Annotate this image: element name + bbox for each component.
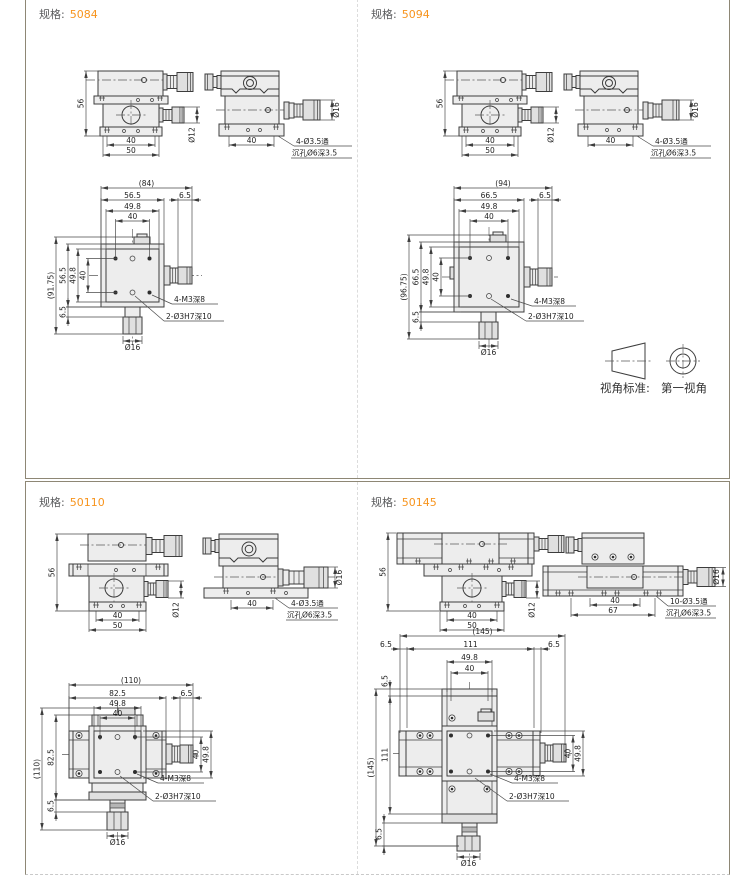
screw <box>419 734 422 737</box>
lower-block <box>89 576 144 602</box>
clamp-band <box>110 803 125 808</box>
dim-label: 66.5 <box>481 191 498 200</box>
mic-bracket <box>534 537 539 551</box>
dim-arrow <box>55 534 58 541</box>
dim-arrow <box>40 823 43 830</box>
shaft-knob <box>457 836 480 851</box>
mic-bracket <box>278 569 283 586</box>
mic-bracket <box>215 540 219 553</box>
bolt-hole <box>449 734 453 738</box>
dim-label: 50 <box>126 146 136 155</box>
dim-arrow <box>382 816 385 823</box>
dim-label: 6.5 <box>47 800 56 812</box>
dim-arrow <box>192 198 199 201</box>
dim-arrow <box>388 807 391 814</box>
dim-arrow <box>721 580 724 587</box>
dim-arrow <box>451 671 458 674</box>
dim-arrow <box>69 696 76 699</box>
mic-sleeve <box>163 110 172 121</box>
dim-label: 56 <box>77 99 86 109</box>
dim-arrow <box>393 647 400 650</box>
dim-label: Ø16 <box>110 838 126 847</box>
dim-arrow <box>209 731 212 738</box>
line <box>275 598 289 608</box>
dim-label: 6.5 <box>181 689 193 698</box>
bottom-wing <box>442 781 497 814</box>
spec-number: 50110 <box>70 496 105 509</box>
dim-label: 49.8 <box>461 653 478 662</box>
dim-arrow <box>501 219 508 222</box>
side-view: Ø16406710-Ø3.5通沉孔Ø6深3.5 <box>543 533 726 618</box>
bolt-hole <box>449 770 453 774</box>
dim-label: 40 <box>128 212 138 221</box>
part <box>289 103 294 118</box>
dim-label: 6.5 <box>412 311 421 323</box>
dim-label: (110) <box>121 676 141 685</box>
dim-arrow <box>429 247 432 254</box>
dim-label: (96.75) <box>400 273 409 300</box>
dim-arrow <box>626 143 633 146</box>
note-label: 10-Ø3.5通 <box>670 596 708 606</box>
bolt-hole <box>148 257 152 261</box>
lock-tab <box>134 237 150 244</box>
dim-label: 40 <box>485 136 495 145</box>
view-standard-label: 视角标准: <box>600 381 650 395</box>
dim-arrow <box>443 71 446 78</box>
front-view: 564050Ø12 <box>48 534 185 632</box>
dim-label: (145) <box>472 627 492 636</box>
spec-label: 规格: <box>39 496 65 509</box>
shaft-neck <box>125 307 140 317</box>
dim-label: 40 <box>465 664 475 673</box>
dim-arrow <box>440 628 447 631</box>
spec-label: 规格: <box>371 8 397 21</box>
dim-arrow <box>545 186 552 189</box>
mic-sleeve <box>526 76 536 89</box>
dim-arrow <box>721 568 724 575</box>
mic-knob <box>205 74 213 90</box>
mic-sleeve <box>522 110 531 121</box>
dim-label: 49.8 <box>69 267 78 284</box>
mic-bracket <box>540 743 545 763</box>
spec-header: 规格:50110 <box>39 494 105 510</box>
spec-section-bottom: 规格:50110 564050Ø12Ø16404-Ø3.5通沉孔Ø6深3.5Ø1… <box>25 481 730 875</box>
dim-arrow <box>454 186 461 189</box>
dim-label: (145) <box>367 757 376 777</box>
screw <box>78 772 81 775</box>
dim-label: Ø16 <box>691 102 700 118</box>
dim-arrow <box>86 286 89 293</box>
dim-arrow <box>173 696 180 699</box>
dim-arrow <box>66 300 69 307</box>
note-label: 沉孔Ø6深3.5 <box>666 609 711 618</box>
dim-arrow <box>96 618 103 621</box>
dim-label: 49.8 <box>124 202 141 211</box>
spec-number: 5094 <box>402 8 430 21</box>
note-label: 4-Ø3.5通 <box>291 598 324 608</box>
dim-arrow <box>590 603 597 606</box>
dim-label: Ø16 <box>461 859 477 868</box>
dim-arrow <box>76 295 79 302</box>
side-tab <box>450 267 454 279</box>
dim-arrow <box>179 591 182 598</box>
mic-bracket <box>217 76 221 89</box>
dim-arrow <box>443 129 446 136</box>
dim-label: Ø16 <box>335 570 344 586</box>
lock-tab <box>490 235 506 242</box>
dim-label: 6.5 <box>375 828 384 840</box>
stage-top-block <box>98 71 163 96</box>
part <box>283 570 289 585</box>
technical-drawing-50110: 564050Ø12Ø16404-Ø3.5通沉孔Ø6深3.5Ø164049.882… <box>26 482 357 874</box>
dim-arrow <box>531 198 538 201</box>
spec-panel-50145: 规格:50145 564050Ø12Ø16406710-Ø3.5通沉孔Ø6深3.… <box>357 482 729 874</box>
dim-arrow <box>159 696 166 699</box>
dim-label: Ø16 <box>712 569 721 585</box>
dim-arrow <box>143 219 150 222</box>
moving-plate <box>459 247 519 307</box>
note-label: 2-Ø3H7深10 <box>528 312 574 321</box>
dim-label: Ø16 <box>481 348 497 357</box>
dim-arrow <box>407 235 410 242</box>
dim-arrow <box>86 259 89 266</box>
line <box>656 596 668 606</box>
dim-arrow <box>179 581 182 588</box>
dim-label: 40 <box>126 136 136 145</box>
bolt-hole <box>486 770 490 774</box>
part <box>648 103 653 118</box>
dim-label: Ø12 <box>172 602 181 618</box>
dim-arrow <box>507 143 514 146</box>
dim-arrow <box>633 603 640 606</box>
mic-sleeve <box>170 268 178 283</box>
dim-label: (110) <box>33 759 42 779</box>
dim-label: 40 <box>484 212 494 221</box>
dim-label: 6.5 <box>548 640 560 649</box>
dim-label: Ø12 <box>528 602 537 618</box>
dim-label: 6.5 <box>381 675 390 687</box>
dim-arrow <box>511 153 518 156</box>
base-plate <box>459 127 521 136</box>
spec-panel-50110: 规格:50110 564050Ø12Ø16404-Ø3.5通沉孔Ø6深3.5Ø1… <box>26 482 357 874</box>
spec-number: 50145 <box>402 496 437 509</box>
mic-sleeve <box>167 76 177 89</box>
dim-arrow <box>429 300 432 307</box>
mic-bracket <box>284 102 289 119</box>
dim-label: 40 <box>192 750 201 760</box>
dim-arrow <box>209 771 212 778</box>
dim-arrow <box>101 186 108 189</box>
dim-arrow <box>148 143 155 146</box>
plan-view: Ø164049.8111(145)6.56.56.5111(145)6.5404… <box>367 627 586 868</box>
stage-side-block <box>221 71 279 96</box>
mic-knob <box>566 537 574 553</box>
dim-arrow <box>54 327 57 334</box>
mic-sleeve <box>545 745 553 761</box>
rail-cap <box>442 814 497 823</box>
stage-top-block <box>457 71 522 96</box>
side-view: Ø16404-Ø3.5通沉孔Ø6深3.5 <box>203 534 344 620</box>
dim-arrow <box>466 143 473 146</box>
dim-arrow <box>535 581 538 588</box>
dim-label: (84) <box>139 179 154 188</box>
side-view: Ø16404-Ø3.5通沉孔Ø6深3.5 <box>205 71 352 158</box>
note-label: 2-Ø3H7深10 <box>166 312 212 321</box>
dim-arrow <box>447 618 454 621</box>
part <box>493 232 503 235</box>
spec-panel-5094: 规格:5094 564050Ø12Ø16404-Ø3.5通沉孔Ø6深3.5Ø16… <box>357 0 729 478</box>
mic-sleeve <box>539 539 548 550</box>
spec-sheet-page: 规格:5084 564050Ø12Ø16404-Ø3.5通沉孔Ø6深3.5Ø16… <box>0 0 750 882</box>
mic-sleeve <box>289 571 304 584</box>
bolt-hole <box>98 770 102 774</box>
dim-label: 111 <box>381 748 390 763</box>
base-plate <box>100 127 162 136</box>
dim-label: 40 <box>564 749 573 759</box>
base-rail <box>204 588 308 598</box>
dim-arrow <box>199 737 202 744</box>
dim-label: 56 <box>379 567 388 577</box>
dim-arrow <box>132 618 139 621</box>
dim-arrow <box>55 604 58 611</box>
dim-arrow <box>157 198 164 201</box>
dim-arrow <box>400 634 407 637</box>
dim-arrow <box>419 242 422 249</box>
technical-drawing-5084: 564050Ø12Ø16404-Ø3.5通沉孔Ø6深3.5Ø164049.856… <box>26 0 357 477</box>
bolt-hole <box>506 294 510 298</box>
dim-label: 50 <box>485 146 495 155</box>
dim-label: 66.5 <box>412 268 421 285</box>
screw <box>594 556 597 559</box>
note-label: 4-M3深8 <box>174 295 205 304</box>
bolt-hole <box>148 291 152 295</box>
mic-bracket <box>524 267 530 287</box>
part <box>481 709 491 712</box>
mic-bracket <box>164 266 170 285</box>
dim-arrow <box>84 71 87 78</box>
dim-arrow <box>571 765 574 772</box>
base-plate <box>440 602 504 611</box>
dim-label: 40 <box>113 709 123 718</box>
dim-label: 40 <box>467 611 477 620</box>
note-label: 2-Ø3H7深10 <box>509 792 555 801</box>
dim-arrow <box>558 634 565 637</box>
line <box>637 136 653 146</box>
note-label: 4-Ø3.5通 <box>296 136 329 146</box>
dim-arrow <box>481 671 488 674</box>
dim-label: Ø12 <box>188 127 197 143</box>
dim-label: (91.75) <box>47 272 56 299</box>
dim-label: 40 <box>247 136 257 145</box>
dim-arrow <box>195 116 198 123</box>
dim-arrow <box>459 209 466 212</box>
moving-plate <box>106 249 159 302</box>
dim-arrow <box>171 198 178 201</box>
spec-header: 规格:5084 <box>39 6 98 22</box>
dim-arrow <box>66 244 69 251</box>
dim-arrow <box>40 708 43 715</box>
dim-arrow <box>407 647 414 650</box>
dim-arrow <box>527 647 534 650</box>
dim-label: 40 <box>610 596 620 605</box>
dim-arrow <box>571 613 578 616</box>
dim-arrow <box>554 116 557 123</box>
shaft-knob <box>107 812 128 830</box>
note-label: 4-Ø3.5通 <box>655 136 688 146</box>
dim-arrow <box>648 613 655 616</box>
plan-view: Ø164049.856.5(84)6.54049.856.5(91.75)6.5… <box>47 179 225 352</box>
mic-bracket <box>643 102 648 119</box>
screw <box>612 556 615 559</box>
dim-arrow <box>554 107 557 114</box>
mic-knob <box>203 538 211 554</box>
dim-arrow <box>439 289 442 296</box>
screw <box>429 734 432 737</box>
mic-bracket <box>578 539 582 552</box>
dim-arrow <box>588 143 595 146</box>
screw <box>429 770 432 773</box>
dim-label: 67 <box>608 606 618 615</box>
dim-label: 111 <box>463 640 478 649</box>
dim-label: 6.5 <box>380 640 392 649</box>
dim-arrow <box>541 647 548 650</box>
dim-arrow <box>101 198 108 201</box>
plan-view: Ø164049.882.5(110)6.582.5(110)6.54049.84… <box>33 676 217 847</box>
screw <box>486 788 489 791</box>
front-view: 564050Ø12 <box>379 533 565 632</box>
stage-top-block <box>88 534 146 561</box>
dim-label: 6.5 <box>59 306 68 318</box>
dim-arrow <box>231 606 238 609</box>
shaft-knob <box>123 317 142 334</box>
technical-drawing-50145: 564050Ø12Ø16406710-Ø3.5通沉孔Ø6深3.5Ø164049.… <box>358 482 730 874</box>
shaft-knob <box>479 322 498 339</box>
dim-label: 82.5 <box>109 689 126 698</box>
screw <box>451 717 454 720</box>
bolt-hole <box>133 770 137 774</box>
dim-arrow <box>185 186 192 189</box>
dim-arrow <box>462 153 469 156</box>
dim-arrow <box>152 209 159 212</box>
note-label: 沉孔Ø6深3.5 <box>287 611 332 620</box>
dim-arrow <box>76 249 79 256</box>
view-standard-value: 第一视角 <box>661 381 707 395</box>
dim-arrow <box>386 604 389 611</box>
dim-label: 56.5 <box>124 191 141 200</box>
mic-sleeve <box>530 269 538 285</box>
dim-label: 56.5 <box>59 267 68 284</box>
shaft-neck <box>481 312 496 322</box>
screw <box>451 788 454 791</box>
mic-bracket <box>522 74 526 90</box>
mic-bracket <box>576 76 580 89</box>
mic-sleeve <box>213 77 217 88</box>
dim-label: 6.5 <box>539 191 551 200</box>
mic-bracket <box>159 108 163 122</box>
dim-arrow <box>267 143 274 146</box>
dim-arrow <box>266 606 273 609</box>
dim-arrow <box>107 143 114 146</box>
dim-arrow <box>386 533 389 540</box>
dim-arrow <box>193 696 200 699</box>
screw <box>630 556 633 559</box>
dim-arrow <box>103 153 110 156</box>
dim-arrow <box>439 258 442 265</box>
spec-header: 规格:50145 <box>371 494 437 510</box>
mic-sleeve <box>294 104 303 117</box>
dim-arrow <box>374 689 377 696</box>
dim-arrow <box>454 198 461 201</box>
dim-arrow <box>490 618 497 621</box>
note-label: 4-M3深8 <box>534 297 565 306</box>
part <box>137 234 147 237</box>
dim-label: Ø12 <box>547 127 556 143</box>
mic-sleeve <box>148 583 156 595</box>
screw <box>419 770 422 773</box>
dim-label: 56 <box>48 568 57 578</box>
spec-label: 规格: <box>39 8 65 21</box>
note-label: 4-M3深8 <box>160 774 191 783</box>
dim-label: 49.8 <box>202 746 211 763</box>
dim-arrow <box>485 660 492 663</box>
mic-sleeve <box>172 746 180 762</box>
dim-label: Ø16 <box>332 102 341 118</box>
note-label: 2-Ø3H7深10 <box>155 792 201 801</box>
mic-sleeve <box>653 104 662 117</box>
screw <box>155 734 158 737</box>
dim-arrow <box>54 793 57 800</box>
dim-label: (94) <box>495 179 510 188</box>
dim-arrow <box>195 107 198 114</box>
mic-bracket <box>146 538 152 555</box>
note-label: 沉孔Ø6深3.5 <box>292 149 337 158</box>
side-view: Ø16404-Ø3.5通沉孔Ø6深3.5 <box>564 71 711 158</box>
dim-arrow <box>512 209 519 212</box>
mic-bracket <box>502 582 506 597</box>
mic-bracket <box>144 582 148 597</box>
mic-bracket <box>163 74 167 90</box>
dim-arrow <box>581 769 584 776</box>
spec-header: 规格:5094 <box>371 6 430 22</box>
dim-arrow <box>388 696 391 703</box>
dim-label: Ø16 <box>125 343 141 352</box>
line <box>278 136 294 146</box>
dim-label: 40 <box>247 599 257 608</box>
dim-label: 49.8 <box>481 202 498 211</box>
dim-label: 56 <box>436 99 445 109</box>
dim-arrow <box>552 198 559 201</box>
dim-arrow <box>419 305 422 312</box>
clamp-band <box>462 827 477 832</box>
dim-arrow <box>571 736 574 743</box>
note-label: 沉孔Ø6深3.5 <box>651 149 696 158</box>
bolt-hole <box>486 734 490 738</box>
mic-sleeve <box>572 77 576 88</box>
dim-label: 6.5 <box>179 191 191 200</box>
front-view: 564050Ø12 <box>77 71 201 157</box>
dim-label: 50 <box>113 621 123 630</box>
dim-arrow <box>229 143 236 146</box>
dim-label: 40 <box>432 272 441 282</box>
mic-sleeve <box>506 583 514 595</box>
lock-tab <box>478 712 494 721</box>
dim-arrow <box>106 209 113 212</box>
dim-arrow <box>54 237 57 244</box>
mic-bracket <box>166 744 172 764</box>
screw <box>155 772 158 775</box>
dim-label: 49.8 <box>422 268 431 285</box>
dim-arrow <box>470 219 477 222</box>
